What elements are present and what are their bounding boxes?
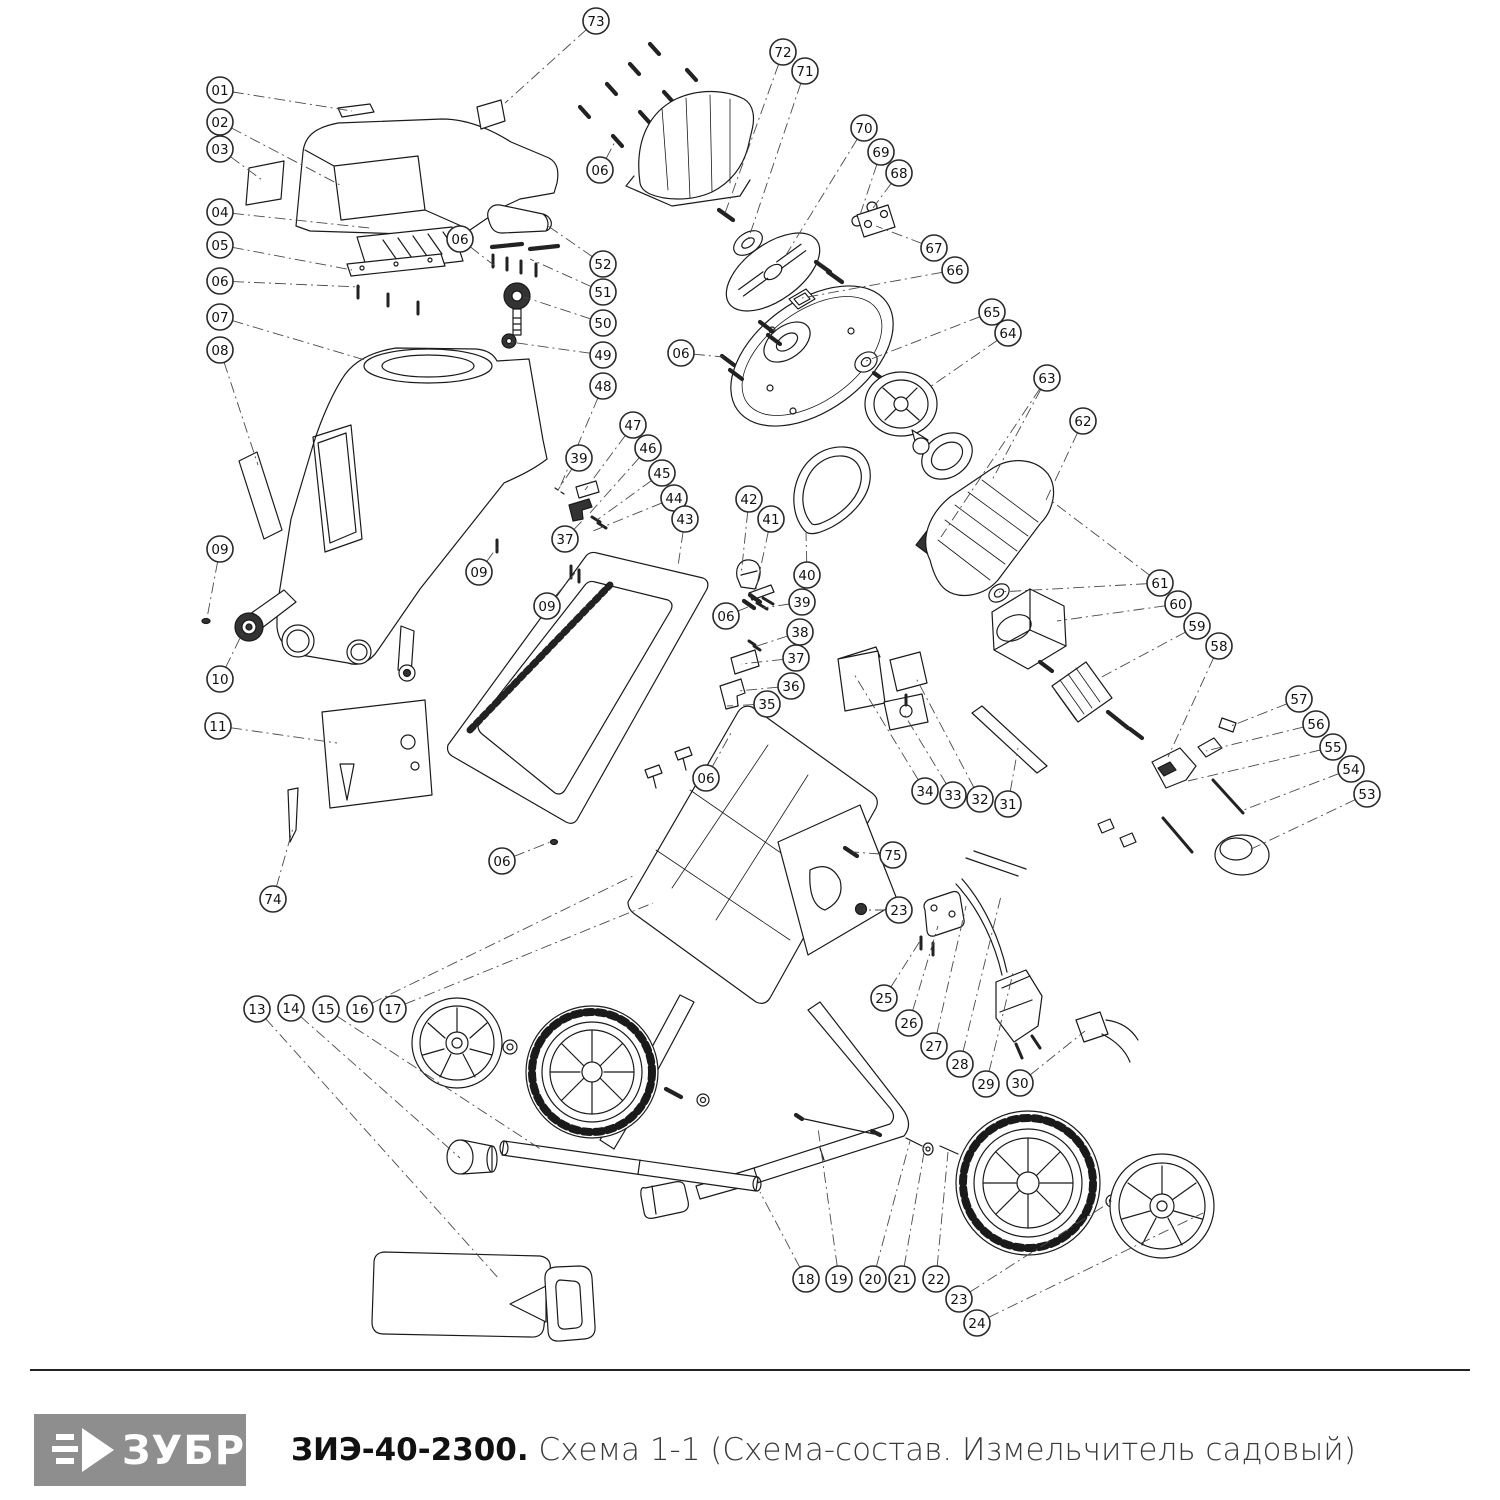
callout-09: 09 (207, 536, 233, 618)
toggle-bolt (675, 747, 692, 770)
screw-54-part (1213, 780, 1243, 813)
leader-line-38 (754, 636, 788, 647)
leader-line-61 (1049, 499, 1150, 575)
callout-number-14: 14 (282, 1001, 299, 1017)
wires-28-part (966, 851, 1026, 876)
leader-line-74 (277, 828, 294, 887)
rim-wheel-left-hub (446, 1032, 468, 1054)
leader-line-57 (1231, 704, 1287, 726)
callout-number-55: 55 (1324, 740, 1341, 756)
callout-number-03: 03 (211, 142, 228, 158)
pointer-74-part (288, 788, 298, 842)
strip-31-part (972, 706, 1047, 773)
callout-43: 43 (672, 506, 698, 566)
callout-40: 40 (794, 533, 820, 588)
callout-31: 31 (995, 748, 1021, 817)
leader-line-60 (1057, 606, 1165, 621)
tread-wheel-right-hub (1017, 1172, 1039, 1194)
diagram-title-caption: Схема 1-1 (Схема-состав. Измельчитель са… (539, 1432, 1356, 1468)
tread-wheel-left-hub (582, 1062, 602, 1082)
box-34-part (838, 647, 885, 711)
callout-25: 25 (871, 941, 920, 1011)
plate-32-part (890, 652, 927, 691)
callout-number-59: 59 (1188, 619, 1205, 635)
screws-51-part (493, 255, 536, 276)
callout-number-19: 19 (830, 1272, 847, 1288)
leader-line-07 (233, 321, 366, 360)
leader-line-48 (560, 398, 598, 487)
knob-10-center (246, 624, 252, 630)
cup-63-part (913, 423, 981, 488)
callout-06: 06 (489, 841, 553, 874)
leader-line-25 (891, 941, 920, 987)
leader-line-71 (748, 83, 801, 240)
pin-20-part (906, 1138, 922, 1146)
washer-49-hole (507, 339, 512, 344)
panel-small-bracket-47 (576, 481, 599, 498)
callout-73: 73 (505, 8, 609, 103)
callout-number-56: 56 (1307, 717, 1324, 733)
callout-06: 06 (587, 140, 616, 183)
callout-58: 58 (1168, 633, 1232, 757)
callout-number-09: 09 (470, 565, 487, 581)
leader-line-51 (530, 259, 591, 287)
leader-line-26 (913, 926, 938, 1011)
callout-number-15: 15 (317, 1002, 334, 1018)
callout-number-54: 54 (1342, 762, 1359, 778)
plug-29-part (996, 970, 1042, 1042)
motor-housing-62-part (926, 461, 1054, 596)
callout-08: 08 (207, 337, 258, 465)
leader-line-52 (548, 226, 592, 257)
diagram-title: ЗИЭ-40-2300. Схема 1-1 (Схема-состав. Из… (291, 1432, 1356, 1468)
callout-22: 22 (923, 1152, 949, 1292)
callout-74: 74 (260, 828, 293, 912)
callout-number-06: 06 (697, 771, 714, 787)
axle-pin (666, 1089, 681, 1097)
callout-number-30: 30 (1011, 1076, 1028, 1092)
callout-number-02: 02 (211, 115, 228, 131)
callout-number-36: 36 (782, 679, 799, 695)
callout-03: 03 (207, 136, 262, 180)
callout-number-26: 26 (900, 1016, 917, 1032)
leader-line-22 (937, 1152, 948, 1266)
zubr-logo-text: ЗУБР (122, 1428, 245, 1474)
leader-line-50 (524, 297, 591, 319)
sticker-03-part (246, 161, 284, 205)
carrier-64-hub (894, 397, 908, 411)
callout-05: 05 (207, 232, 352, 270)
leader-line-06 (606, 140, 616, 159)
screws-25-part (921, 937, 933, 955)
callout-number-37: 37 (556, 532, 573, 548)
spacer-22-part (940, 1146, 958, 1154)
callout-number-50: 50 (594, 316, 611, 332)
callout-number-67: 67 (925, 241, 942, 257)
leader-line-49 (510, 342, 590, 353)
cup-63-ear (913, 438, 929, 454)
callout-06: 06 (668, 340, 723, 366)
leader-line-44 (593, 503, 662, 531)
callout-number-42: 42 (740, 492, 757, 508)
leader-line-39 (558, 469, 572, 490)
leader-line-61 (999, 584, 1147, 592)
callout-number-52: 52 (594, 257, 611, 273)
leader-line-70 (786, 139, 857, 255)
callout-number-27: 27 (925, 1039, 942, 1055)
nut-23-part (856, 904, 867, 915)
callout-number-39: 39 (793, 595, 810, 611)
callout-number-18: 18 (797, 1272, 814, 1288)
leader-line-45 (597, 481, 652, 520)
callout-30: 30 (1007, 1031, 1085, 1096)
callout-number-57: 57 (1290, 692, 1307, 708)
callout-number-10: 10 (211, 672, 228, 688)
callout-number-48: 48 (594, 379, 611, 395)
callout-number-41: 41 (762, 512, 779, 528)
end-cap-14-face (447, 1140, 473, 1174)
knob-50-inner (512, 291, 522, 301)
callout-number-47: 47 (624, 418, 641, 434)
callout-09: 09 (466, 546, 498, 585)
callout-21: 21 (889, 1147, 925, 1292)
plate-37-part (731, 650, 759, 674)
callout-number-63: 63 (1038, 371, 1055, 387)
callout-number-07: 07 (211, 310, 228, 326)
screw-09-part (202, 619, 210, 624)
callout-number-37: 37 (787, 651, 804, 667)
chute-cover-part (639, 91, 754, 199)
callout-number-16: 16 (351, 1002, 368, 1018)
leader-line-39 (763, 604, 789, 608)
screw-54b-part (1163, 818, 1192, 852)
small-terminal (1098, 819, 1136, 847)
leader-line-05 (233, 247, 352, 270)
callout-number-20: 20 (864, 1272, 881, 1288)
exploded-parts-diagram-page: 0102030405060708091011747306065251504948… (0, 0, 1500, 1500)
leader-line-32 (916, 678, 974, 788)
washer-21-part (923, 1143, 933, 1155)
callout-number-40: 40 (798, 568, 815, 584)
footer: ЗУБР ЗИЭ-40-2300. Схема 1-1 (Схема-соста… (30, 1370, 1470, 1486)
leader-line-56 (1206, 727, 1303, 751)
callout-number-58: 58 (1210, 639, 1227, 655)
callout-number-69: 69 (872, 145, 889, 161)
foot-cap-18-part (641, 1182, 689, 1219)
callout-18: 18 (760, 1192, 819, 1292)
bracket-35-36-part (720, 679, 745, 709)
leader-line-06 (694, 354, 723, 357)
callout-number-04: 04 (211, 205, 228, 221)
callout-number-45: 45 (653, 466, 670, 482)
callout-01: 01 (207, 77, 352, 111)
callout-number-21: 21 (893, 1272, 910, 1288)
leader-line-62 (1046, 433, 1078, 500)
callout-48: 48 (560, 373, 616, 487)
callout-number-06: 06 (451, 232, 468, 248)
diagram-canvas: 0102030405060708091011747306065251504948… (0, 0, 1500, 1500)
callout-number-06: 06 (672, 346, 689, 362)
leader-line-33 (904, 714, 946, 784)
panel-dots-39 (555, 488, 564, 494)
callout-number-29: 29 (977, 1077, 994, 1093)
callout-number-64: 64 (999, 326, 1016, 342)
leader-line-30 (1030, 1031, 1085, 1075)
callout-38: 38 (754, 619, 813, 647)
callout-number-08: 08 (211, 343, 228, 359)
callout-06: 06 (713, 603, 748, 629)
callout-number-60: 60 (1169, 597, 1186, 613)
connector-30-wires (1102, 1020, 1138, 1062)
callout-number-43: 43 (676, 512, 693, 528)
leader-line-59 (1098, 632, 1186, 679)
leader-line-37 (574, 521, 582, 530)
leader-line-34 (854, 674, 918, 780)
cable-27-part (956, 879, 1007, 975)
callout-number-66: 66 (946, 263, 963, 279)
callout-number-61: 61 (1151, 576, 1168, 592)
callout-53: 53 (1247, 781, 1380, 851)
callout-number-32: 32 (971, 792, 988, 808)
plate-26-part (924, 892, 964, 937)
parts-layer (202, 44, 1269, 1341)
hopper-part (277, 348, 547, 664)
callout-number-22: 22 (927, 1272, 944, 1288)
leader-line-40 (806, 533, 807, 562)
callout-number-23: 23 (890, 903, 907, 919)
bag-13-part (372, 1252, 550, 1337)
callout-number-74: 74 (264, 892, 281, 908)
rotor-59-part (1052, 662, 1112, 722)
callout-71: 71 (748, 58, 818, 240)
callout-68: 68 (873, 160, 912, 208)
leader-line-01 (233, 92, 352, 111)
leader-line-11 (231, 728, 337, 743)
leader-line-64 (930, 340, 997, 387)
callout-06: 06 (207, 268, 360, 294)
side-box-11-part (322, 700, 432, 808)
callout-number-01: 01 (211, 83, 228, 99)
axle-tube-15-part (502, 1141, 758, 1191)
leader-line-06 (738, 607, 748, 611)
rim-wheel-right-hub (1150, 1194, 1174, 1218)
leader-line-41 (756, 532, 768, 589)
callout-number-72: 72 (774, 45, 791, 61)
callout-number-23: 23 (950, 1292, 967, 1308)
callout-number-51: 51 (594, 285, 611, 301)
leader-line-16 (372, 875, 635, 1003)
callout-number-39: 39 (570, 451, 587, 467)
connector-30-part (1076, 1012, 1108, 1042)
callout-54: 54 (1241, 756, 1364, 811)
callout-number-68: 68 (890, 166, 907, 182)
plug-29-prongs (1016, 1036, 1040, 1058)
callout-number-35: 35 (758, 697, 775, 713)
panel-flag-46 (569, 499, 592, 521)
leader-line-09 (207, 562, 218, 618)
bag-13-handle (545, 1266, 595, 1341)
callout-10: 10 (207, 632, 243, 692)
callout-number-24: 24 (968, 1316, 985, 1332)
pins-51-part (492, 244, 558, 249)
leader-line-21 (904, 1147, 925, 1266)
callout-number-65: 65 (983, 305, 1000, 321)
callout-number-06: 06 (493, 854, 510, 870)
callout-number-13: 13 (248, 1002, 265, 1018)
sticker-73-part (477, 100, 505, 129)
leader-line-68 (873, 183, 891, 208)
screws-06-row (358, 286, 418, 314)
leader-line-20 (876, 1141, 910, 1266)
leader-line-73 (505, 30, 586, 103)
callout-number-73: 73 (587, 14, 604, 30)
callout-number-06: 06 (211, 274, 228, 290)
leader-line-09 (487, 546, 498, 562)
callout-number-46: 46 (639, 441, 656, 457)
callout-59: 59 (1098, 613, 1210, 679)
cap-42-part (737, 560, 760, 589)
callout-number-09: 09 (211, 542, 228, 558)
leader-line-43 (678, 532, 683, 566)
callout-11: 11 (205, 713, 337, 743)
callout-56: 56 (1206, 711, 1329, 751)
callout-number-28: 28 (951, 1057, 968, 1073)
knob-50-shaft (513, 309, 521, 335)
callout-number-44: 44 (665, 491, 682, 507)
leader-line-06 (514, 841, 553, 856)
grip-52-part (488, 205, 552, 233)
callout-number-33: 33 (944, 788, 961, 804)
callout-number-11: 11 (209, 719, 226, 735)
callout-64: 64 (930, 320, 1021, 387)
leader-line-18 (760, 1192, 800, 1268)
callout-number-09: 09 (538, 599, 555, 615)
switch-33-button (900, 705, 912, 717)
rod-19-part (800, 1118, 874, 1134)
leader-line-28 (963, 896, 1001, 1051)
leader-line-17 (405, 903, 653, 1004)
leader-line-54 (1241, 774, 1339, 811)
washer-small (503, 1040, 517, 1054)
bracket-67-part (857, 205, 895, 237)
callout-number-06: 06 (717, 609, 734, 625)
latch-lever-pin (404, 670, 411, 677)
callout-number-06: 06 (591, 163, 608, 179)
leader-line-06 (470, 247, 495, 266)
callout-number-38: 38 (791, 625, 808, 641)
rotor-panel-43-part (448, 552, 708, 823)
callout-57: 57 (1231, 686, 1312, 726)
stator-60-part (992, 589, 1066, 669)
callout-52: 52 (548, 226, 616, 277)
leader-line-08 (224, 362, 258, 465)
callout-number-25: 25 (875, 991, 892, 1007)
callout-number-70: 70 (855, 121, 872, 137)
callout-number-34: 34 (916, 784, 933, 800)
callout-number-05: 05 (211, 238, 228, 254)
callout-37: 37 (552, 521, 582, 552)
callout-number-75: 75 (884, 848, 901, 864)
callout-number-49: 49 (594, 348, 611, 364)
callout-17: 17 (380, 903, 653, 1022)
leader-line-31 (1010, 748, 1018, 791)
callout-60: 60 (1057, 591, 1191, 621)
callout-number-62: 62 (1074, 414, 1091, 430)
screw-06g-part (551, 840, 558, 845)
frame-handle (696, 1002, 909, 1199)
cover-strip-part (338, 104, 374, 117)
axle-washer (697, 1094, 709, 1106)
callout-67: 67 (876, 226, 947, 261)
callout-number-53: 53 (1358, 787, 1375, 803)
leader-line-06 (233, 282, 360, 287)
diagram-title-model: ЗИЭ-40-2300. (291, 1432, 529, 1468)
toggle-bolt (645, 765, 662, 788)
callout-number-17: 17 (384, 1002, 401, 1018)
callout-number-71: 71 (796, 64, 813, 80)
callout-number-31: 31 (999, 797, 1016, 813)
sticker-08-part (239, 452, 282, 539)
